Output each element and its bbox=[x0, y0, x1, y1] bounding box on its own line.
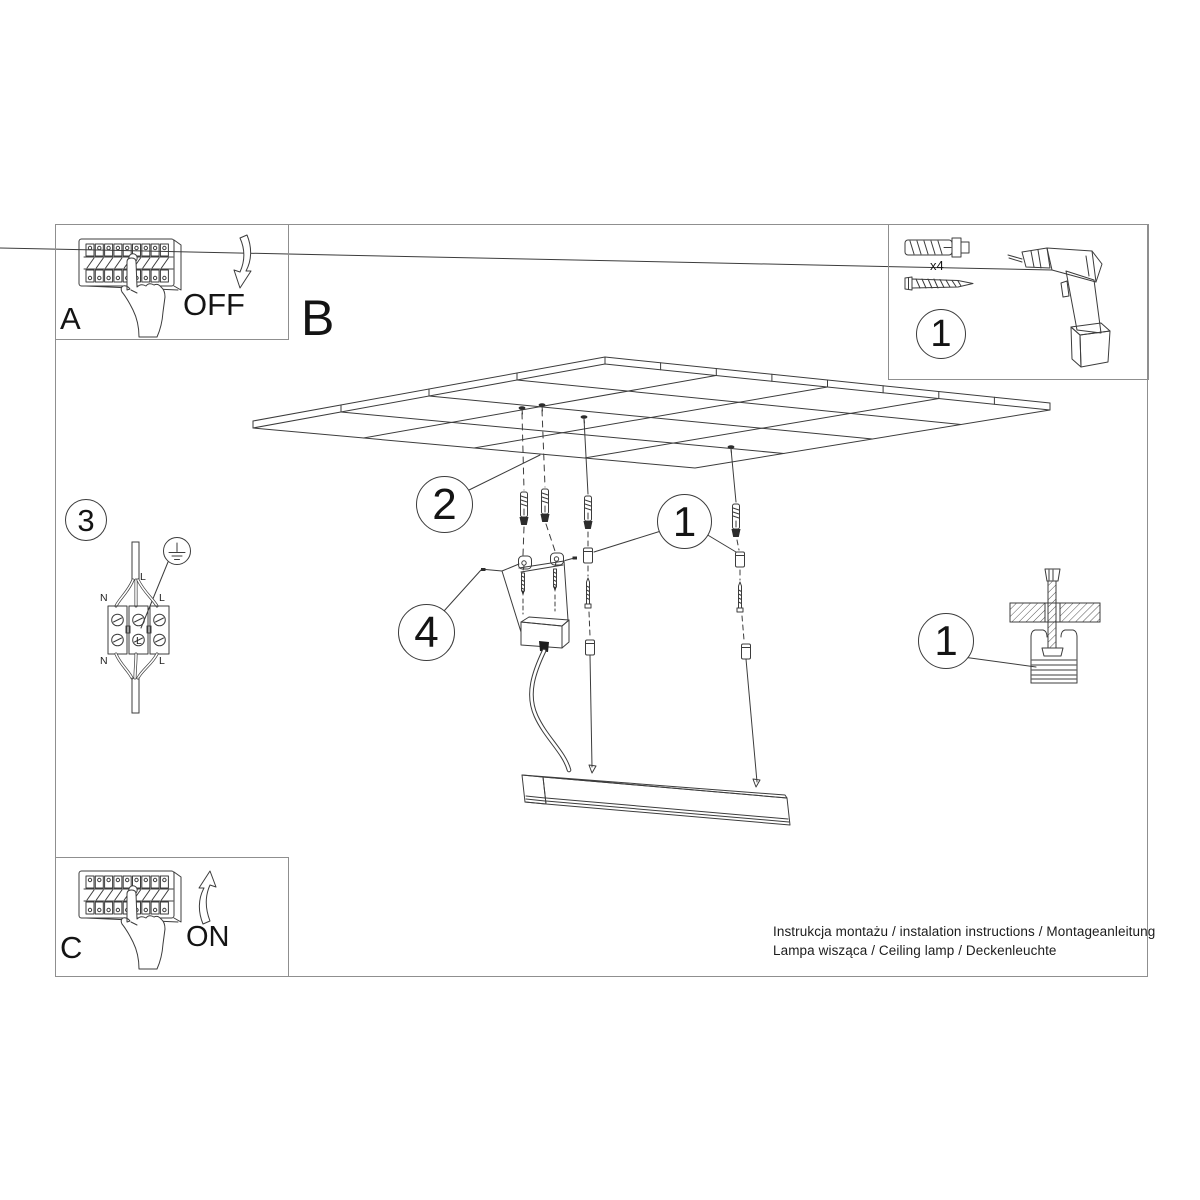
step-c-box bbox=[55, 857, 289, 977]
anchor-qty-label: x4 bbox=[930, 258, 944, 273]
off-label: OFF bbox=[183, 287, 245, 323]
instruction-sheet: A OFF B C ON x4 L N L L N L 1 2 1 4 3 1 … bbox=[0, 0, 1200, 1200]
step-a-box bbox=[55, 224, 289, 340]
step-a-label: A bbox=[60, 301, 81, 337]
footer-line-1: Instrukcja montażu / instalation instruc… bbox=[773, 924, 1155, 939]
callout-wiring: 3 bbox=[65, 499, 107, 541]
callout-ceiling: 2 bbox=[416, 476, 473, 533]
callout-tools: 1 bbox=[916, 309, 966, 359]
callout-suspension: 1 bbox=[657, 494, 712, 549]
wire-n-left-label: N bbox=[100, 592, 108, 604]
on-label: ON bbox=[186, 921, 230, 954]
step-c-label: C bbox=[60, 930, 82, 966]
wire-l-inner-label: L bbox=[136, 635, 142, 647]
callout-canopy: 4 bbox=[398, 604, 455, 661]
wire-l-bottom-label: L bbox=[159, 655, 165, 667]
step-b-label: B bbox=[301, 289, 334, 347]
footer-line-2: Lampa wisząca / Ceiling lamp / Deckenleu… bbox=[773, 943, 1057, 958]
wire-l-right-label: L bbox=[159, 592, 165, 604]
wire-l-top-label: L bbox=[140, 571, 146, 583]
wire-n-bottom-label: N bbox=[100, 655, 108, 667]
tools-box bbox=[888, 224, 1149, 380]
callout-anchor-detail: 1 bbox=[918, 613, 974, 669]
